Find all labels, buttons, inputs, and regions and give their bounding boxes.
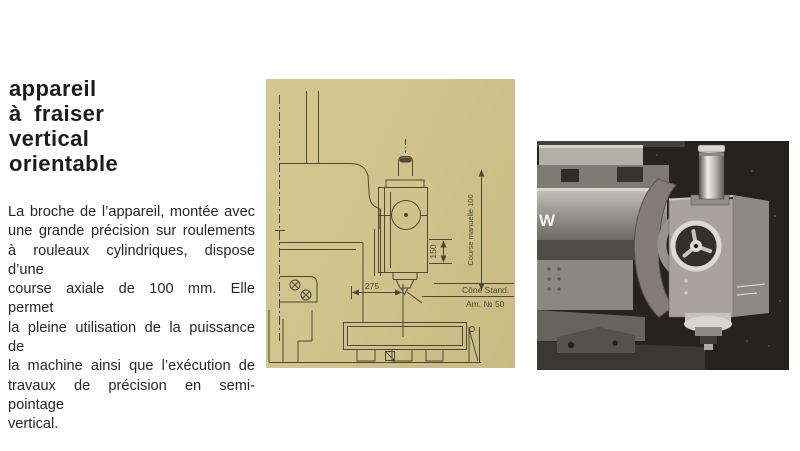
title-line-1: appareil	[9, 76, 259, 101]
paragraph-line: à rouleaux cylindriques, dispose d’une	[8, 242, 255, 281]
dimension-150-label: 150	[428, 244, 438, 258]
paragraph-line: La broche de l’appareil, montée avec	[8, 203, 255, 222]
paragraph-line: vertical.	[8, 415, 255, 434]
paragraph-line: travaux de précision en semi-pointage	[8, 377, 255, 416]
article-paragraph: La broche de l’appareil, montée avec une…	[8, 203, 255, 435]
paragraph-line: course axiale de 100 mm. Elle permet	[8, 280, 255, 319]
taper-standard-label-line1: Cône Stand.	[462, 285, 509, 295]
technical-drawing-panel: 275 150 Course manuelle 100 Cône Stand. …	[266, 79, 515, 368]
photo-panel: W	[537, 141, 789, 370]
title-line-3: vertical	[9, 126, 259, 151]
page-title: appareil à fraiser vertical orientable	[9, 76, 259, 176]
photo-handwheel	[673, 223, 719, 269]
drawing-labels: 275 150 Course manuelle 100 Cône Stand. …	[365, 194, 509, 309]
drawing-machine-outline	[269, 91, 514, 363]
drawing-dimensions	[352, 170, 482, 337]
article-column: appareil à fraiser vertical orientable	[9, 76, 259, 176]
technical-drawing: 275 150 Course manuelle 100 Cône Stand. …	[266, 79, 515, 368]
paragraph-line: la machine ainsi que l’exécution de	[8, 357, 255, 376]
taper-standard-label-line2: Am. № 50	[466, 299, 505, 309]
title-line-4: orientable	[9, 151, 259, 176]
machine-photo: W	[537, 141, 789, 370]
travel-dimension-label: Course manuelle 100	[466, 194, 475, 265]
dimension-275-label: 275	[365, 281, 379, 291]
brochure-page: appareil à fraiser vertical orientable L…	[0, 0, 800, 451]
title-line-2: à fraiser	[9, 101, 259, 126]
brand-letter: W	[539, 211, 556, 230]
paragraph-line: une grande précision sur roulements	[8, 222, 255, 241]
paragraph-line: la pleine utilisation de la puissance de	[8, 319, 255, 358]
